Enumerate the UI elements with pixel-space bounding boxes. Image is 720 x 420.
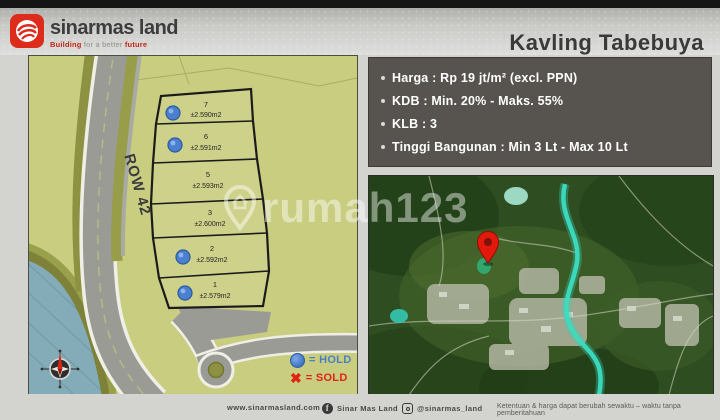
- plot-number: 6: [204, 132, 208, 141]
- plot-area: ±2.593m2: [192, 183, 223, 190]
- footer-website: www.sinarmasland.com: [227, 403, 320, 412]
- plot-area: ±2.579m2: [199, 293, 230, 300]
- top-black-bar: [0, 0, 720, 8]
- info-item-text: KLB : 3: [392, 117, 437, 131]
- site-plan-map: 7±2.590m26±2.591m25±2.593m23±2.600m22±2.…: [28, 55, 358, 395]
- sinarmas-logo-icon: [10, 14, 44, 48]
- sold-label: = SOLD: [306, 372, 348, 384]
- page-title: Kavling Tabebuya: [509, 30, 704, 56]
- plot-status-legend: = HOLD ✖ = SOLD: [290, 351, 351, 387]
- brand-logo: sinarmas land Building for a better futu…: [10, 14, 178, 49]
- plot-area: ±2.590m2: [190, 112, 221, 119]
- slide: sinarmas land Building for a better futu…: [0, 0, 720, 420]
- plot-number: 5: [206, 170, 210, 179]
- hold-dot-icon: [178, 286, 192, 300]
- info-item-text: KDB : Min. 20% - Maks. 55%: [392, 94, 563, 108]
- plot-number: 3: [208, 208, 212, 217]
- footer-instagram: @sinarmas_land: [402, 403, 482, 414]
- legend-hold-row: = HOLD: [290, 351, 351, 369]
- hold-label: = HOLD: [309, 354, 351, 366]
- info-item-1: KDB : Min. 20% - Maks. 55%: [381, 94, 711, 108]
- info-item-0: Harga : Rp 19 jt/m² (excl. PPN): [381, 71, 711, 85]
- instagram-icon: [402, 403, 413, 414]
- sold-x-icon: ✖: [290, 372, 302, 385]
- plot-area: ±2.600m2: [194, 221, 225, 228]
- brand-tagline: Building for a better future: [50, 41, 178, 49]
- hold-dot-icon: [168, 138, 182, 152]
- info-item-text: Tinggi Bangunan : Min 3 Lt - Max 10 Lt: [392, 140, 628, 154]
- legend-sold-row: ✖ = SOLD: [290, 369, 351, 387]
- bullet-icon: [381, 122, 385, 126]
- bullet-icon: [381, 76, 385, 80]
- plot-number: 7: [204, 100, 208, 109]
- plot-area: ±2.591m2: [190, 145, 221, 152]
- hold-circle-icon: [290, 353, 305, 368]
- info-item-3: Tinggi Bangunan : Min 3 Lt - Max 10 Lt: [381, 140, 711, 154]
- hold-dot-icon: [166, 106, 180, 120]
- brand-name: sinarmas land: [50, 18, 178, 38]
- bullet-icon: [381, 145, 385, 149]
- location-satellite-map: [368, 175, 714, 396]
- bullet-icon: [381, 99, 385, 103]
- specs-info-box: Harga : Rp 19 jt/m² (excl. PPN)KDB : Min…: [368, 57, 712, 167]
- info-item-2: KLB : 3: [381, 117, 711, 131]
- hold-dot-icon: [176, 250, 190, 264]
- facebook-icon: f: [322, 403, 333, 414]
- plot-number: 2: [210, 244, 214, 253]
- header: sinarmas land Building for a better futu…: [0, 8, 720, 55]
- footer: www.sinarmasland.com f Sinar Mas Land @s…: [0, 394, 720, 420]
- instagram-handle: @sinarmas_land: [417, 404, 482, 413]
- facebook-handle: Sinar Mas Land: [337, 404, 398, 413]
- info-item-text: Harga : Rp 19 jt/m² (excl. PPN): [392, 71, 577, 85]
- pond: [504, 187, 528, 205]
- plot-area: ±2.592m2: [196, 257, 227, 264]
- footer-facebook: f Sinar Mas Land: [322, 403, 398, 414]
- footer-disclaimer: Ketentuan & harga dapat berubah sewaktu …: [497, 403, 720, 417]
- plot-number: 1: [213, 280, 217, 289]
